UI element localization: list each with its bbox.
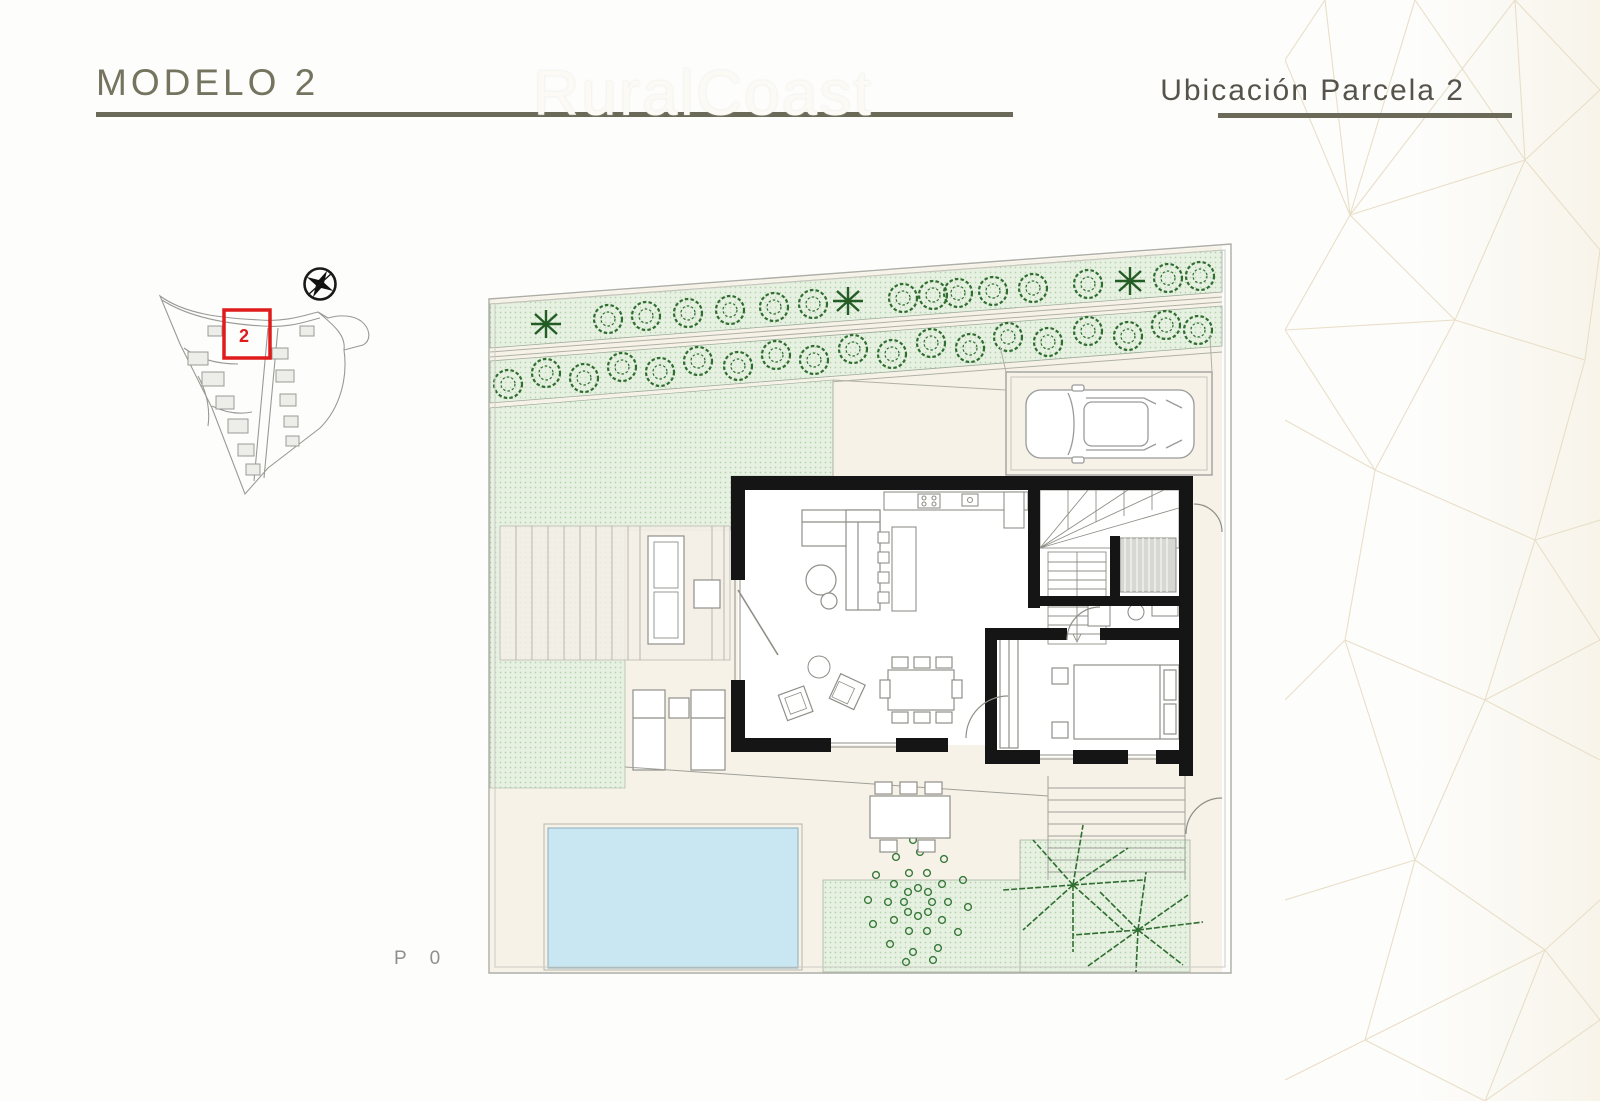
brand-watermark: RuralCoast (533, 56, 1033, 130)
level-label: P 0 (394, 948, 449, 970)
outdoor-side-table (694, 580, 720, 608)
swimming-pool (544, 824, 802, 970)
site-plan-thumbnail: 2 (150, 256, 390, 508)
parcel-number: 2 (239, 326, 249, 346)
kitchen-island (892, 527, 916, 611)
decor-mesh (1285, 0, 1600, 1101)
page-subtitle: Ubicación Parcela 2 (1050, 74, 1465, 108)
pergola-deck (500, 526, 730, 660)
page-title: MODELO 2 (96, 62, 319, 104)
floor-plan-drawing (488, 240, 1232, 985)
outdoor-sofa (648, 536, 684, 644)
page-background: { "header": { "title": "MODELO 2", "subt… (0, 0, 1600, 1101)
car-icon (1026, 385, 1194, 463)
subtitle-underline (1218, 113, 1512, 118)
dining-table (880, 657, 962, 723)
compass-icon (296, 260, 344, 308)
bed (1074, 665, 1179, 739)
